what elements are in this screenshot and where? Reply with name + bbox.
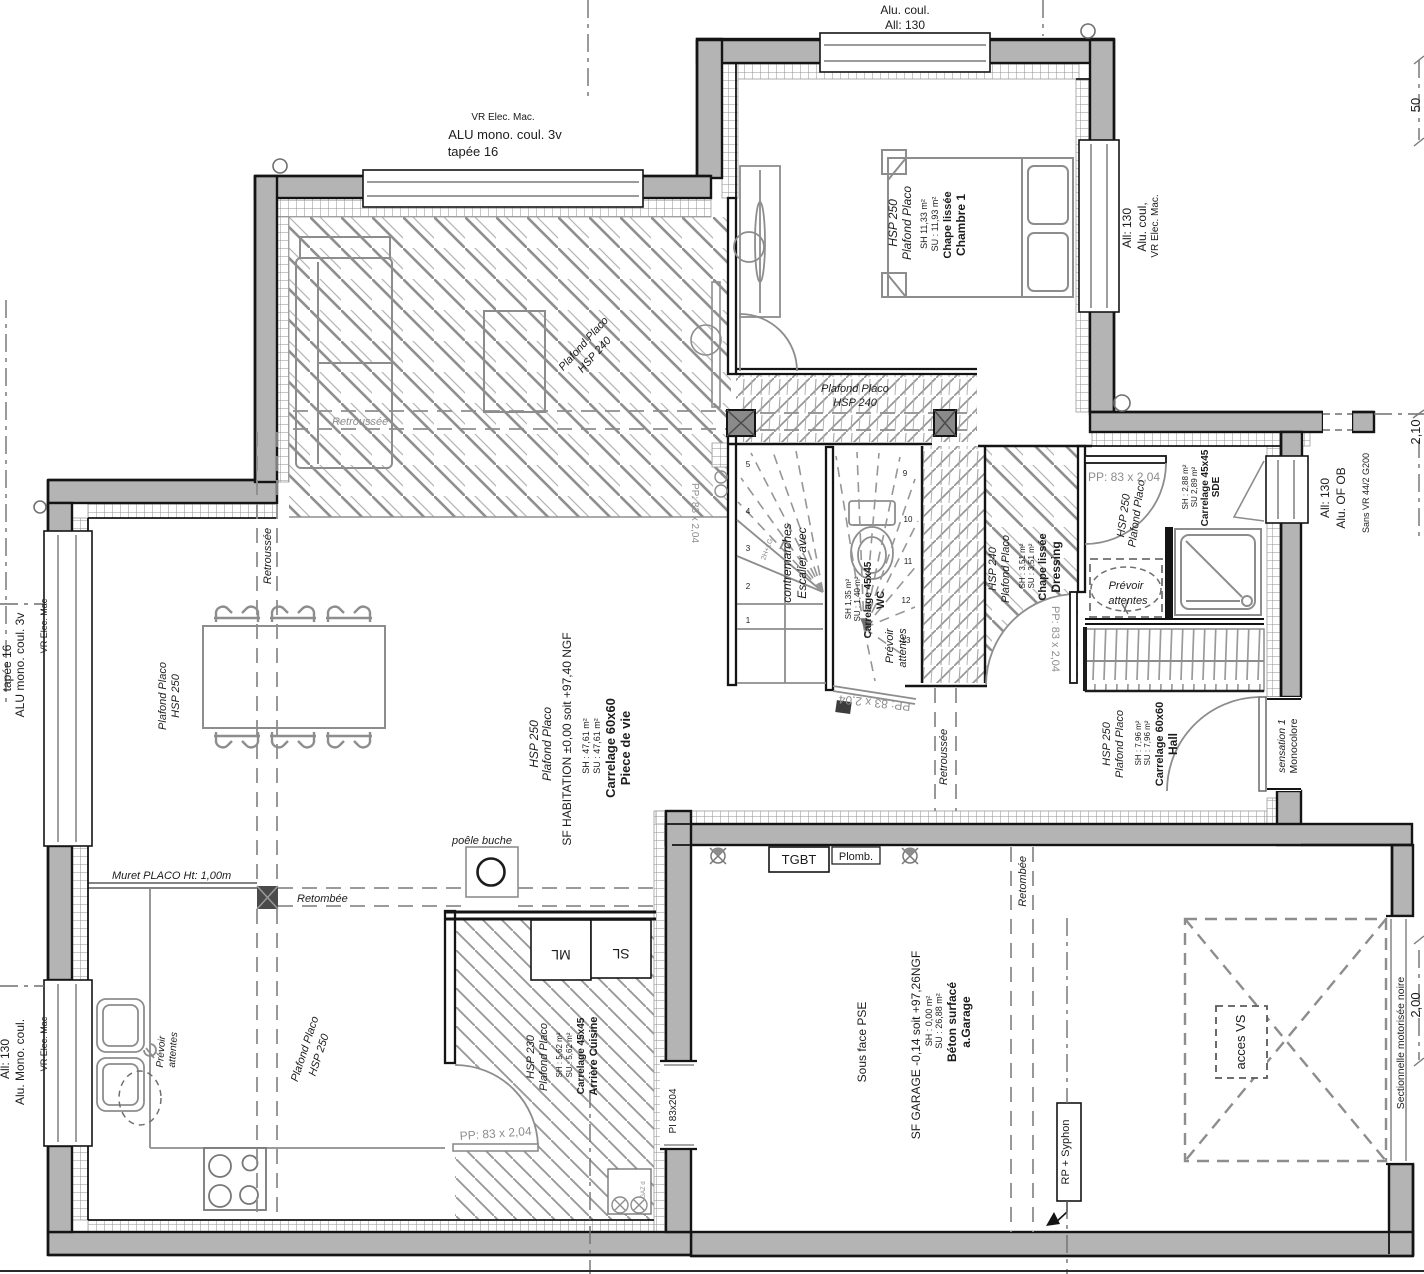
svg-text:SH : 0,00 m²: SH : 0,00 m²: [924, 996, 934, 1047]
svg-text:Plafond Placo: Plafond Placo: [157, 662, 169, 730]
svg-text:Prévoir: Prévoir: [884, 627, 896, 663]
svg-text:GAZ d: GAZ d: [641, 1181, 647, 1198]
svg-text:PP: 83 x 2,04: PP: 83 x 2,04: [1088, 470, 1160, 484]
svg-text:4: 4: [746, 507, 751, 516]
svg-text:Retroussée: Retroussée: [262, 528, 274, 584]
svg-text:attentes: attentes: [897, 628, 909, 668]
svg-text:Plafond Placo: Plafond Placo: [1114, 710, 1126, 778]
svg-text:Carrelage 60x60: Carrelage 60x60: [1154, 702, 1166, 786]
svg-text:SF HABITATION ±0,00 soit +97,4: SF HABITATION ±0,00 soit +97,40 NGF: [560, 632, 574, 845]
svg-text:PI 83x204: PI 83x204: [668, 1088, 679, 1133]
svg-text:WC: WC: [875, 591, 887, 609]
svg-text:Sans VR 44/2 G200: Sans VR 44/2 G200: [1361, 453, 1371, 533]
svg-text:acces VS: acces VS: [1233, 1014, 1248, 1069]
svg-text:ALU mono. coul. 3v: ALU mono. coul. 3v: [448, 127, 562, 142]
svg-text:Hall: Hall: [1166, 733, 1180, 755]
svg-text:SU : 7,96 m²: SU : 7,96 m²: [1143, 720, 1152, 765]
svg-text:Plafond Placo: Plafond Placo: [540, 707, 554, 781]
svg-text:Retombée: Retombée: [1017, 856, 1029, 907]
svg-text:Plomb.: Plomb.: [839, 851, 873, 863]
svg-text:Alu. coul,: Alu. coul,: [1135, 202, 1149, 251]
svg-text:1: 1: [746, 616, 751, 625]
svg-text:SDE: SDE: [1211, 476, 1222, 497]
svg-text:SH : 5,62 m²: SH : 5,62 m²: [555, 1032, 564, 1077]
svg-text:SH 1,35 m²: SH 1,35 m²: [844, 578, 853, 619]
svg-text:Carrelage 45x45: Carrelage 45x45: [576, 1017, 587, 1094]
svg-text:12: 12: [902, 596, 911, 605]
svg-text:contremarches: contremarches: [780, 523, 794, 602]
svg-text:PP: 83 x 2,04: PP: 83 x 2,04: [689, 483, 700, 543]
svg-text:SU : 47,61 m²: SU : 47,61 m²: [592, 718, 602, 774]
svg-text:11: 11: [904, 557, 913, 566]
svg-text:HSP 250: HSP 250: [886, 199, 900, 247]
svg-text:ALU mono. coul. 3v: ALU mono. coul. 3v: [13, 613, 27, 718]
svg-text:Chape lissée: Chape lissée: [942, 191, 954, 258]
svg-text:PP: 83 x 2,04: PP: 83 x 2,04: [1049, 606, 1061, 672]
svg-text:SU : 1,40 m²: SU : 1,40 m²: [853, 576, 862, 621]
svg-text:tapée 16: tapée 16: [0, 644, 14, 691]
svg-text:SL: SL: [612, 946, 629, 962]
svg-text:Plafond Placo: Plafond Placo: [1000, 535, 1012, 603]
svg-text:Plafond Placo: Plafond Placo: [821, 383, 889, 395]
svg-text:SH : 7,96 m²: SH : 7,96 m²: [1134, 720, 1143, 765]
svg-text:Retroussée: Retroussée: [332, 416, 388, 428]
svg-text:SF GARAGE -0,14 soit +97,26NGF: SF GARAGE -0,14 soit +97,26NGF: [909, 951, 923, 1139]
svg-text:sensation 1: sensation 1: [1276, 719, 1288, 773]
svg-text:All: 130: All: 130: [0, 1039, 12, 1079]
svg-text:10: 10: [904, 515, 913, 524]
svg-text:Carrelage 60x60: Carrelage 60x60: [603, 698, 618, 798]
svg-text:HSP 240: HSP 240: [987, 546, 999, 591]
svg-text:SH : 3,51 m²: SH : 3,51 m²: [1018, 543, 1027, 588]
svg-text:SU 2,89 m²: SU 2,89 m²: [1190, 466, 1199, 507]
svg-text:Chape lissée: Chape lissée: [1037, 533, 1049, 600]
svg-text:poêle buche: poêle buche: [451, 835, 512, 847]
svg-text:Muret PLACO Ht: 1,00m: Muret PLACO Ht: 1,00m: [112, 870, 231, 882]
svg-text:Sous face PSE: Sous face PSE: [855, 1002, 869, 1083]
svg-text:Arrière Cuisine: Arrière Cuisine: [588, 1017, 600, 1096]
svg-text:HSP 230: HSP 230: [525, 1034, 537, 1079]
svg-text:All: 130: All: 130: [885, 18, 925, 32]
svg-text:SU : 11,93 m²: SU : 11,93 m²: [930, 197, 940, 252]
svg-text:SH 11,33 m²: SH 11,33 m²: [919, 199, 929, 249]
svg-text:2,10: 2,10: [1408, 419, 1423, 444]
svg-text:Alu. Mono. coul.: Alu. Mono. coul.: [13, 1019, 27, 1105]
svg-text:Sectionnelle motorisée noire: Sectionnelle motorisée noire: [1395, 977, 1407, 1110]
svg-text:tapée 16: tapée 16: [448, 144, 499, 159]
svg-text:Alu. coul.: Alu. coul.: [880, 3, 929, 17]
svg-text:VR Elec. Mac.: VR Elec. Mac.: [471, 112, 534, 123]
svg-text:2: 2: [746, 582, 751, 591]
svg-text:SU : 5,62 m²: SU : 5,62 m²: [565, 1032, 574, 1077]
svg-text:HSP 240: HSP 240: [833, 397, 878, 409]
svg-text:All: 130: All: 130: [1120, 208, 1134, 248]
svg-text:Carrelage 45x45: Carrelage 45x45: [863, 561, 874, 638]
svg-text:Alu. OF OB: Alu. OF OB: [1334, 467, 1348, 528]
svg-text:Escalier avec: Escalier avec: [795, 527, 809, 598]
svg-text:HSP 250: HSP 250: [170, 673, 182, 718]
svg-text:Dressing: Dressing: [1049, 541, 1063, 592]
svg-text:Béton surfacé: Béton surfacé: [945, 982, 959, 1062]
svg-text:VR Elec. Mac: VR Elec. Mac: [39, 1016, 49, 1071]
svg-text:Carrelage 45x45: Carrelage 45x45: [1200, 449, 1211, 526]
svg-text:SH : 47,61 m²: SH : 47,61 m²: [581, 718, 591, 774]
svg-text:Plafond Placo: Plafond Placo: [538, 1023, 550, 1091]
svg-text:VR Elec. Mac.: VR Elec. Mac.: [1150, 194, 1161, 257]
svg-text:50: 50: [1408, 98, 1423, 112]
svg-text:Chambre 1: Chambre 1: [954, 194, 968, 256]
svg-text:2,00: 2,00: [1408, 992, 1423, 1017]
svg-text:Retombée: Retombée: [297, 893, 348, 905]
svg-text:a.Garage: a.Garage: [959, 996, 973, 1048]
svg-text:ML: ML: [551, 947, 571, 963]
svg-text:SU : 26,88 m²: SU : 26,88 m²: [934, 993, 944, 1049]
svg-text:All: 130: All: 130: [1318, 478, 1332, 518]
svg-text:HSP 250: HSP 250: [1101, 721, 1113, 766]
svg-text:VR Elec. Mac: VR Elec. Mac: [39, 598, 49, 653]
svg-text:3: 3: [746, 544, 751, 553]
svg-text:9: 9: [903, 469, 908, 478]
svg-text:SU : 3,51 m²: SU : 3,51 m²: [1027, 543, 1036, 588]
svg-text:Piece de vie: Piece de vie: [618, 711, 633, 785]
svg-text:Retroussée: Retroussée: [938, 729, 950, 785]
svg-text:5: 5: [746, 460, 751, 469]
svg-text:attentes: attentes: [1108, 595, 1148, 607]
svg-text:TGBT: TGBT: [782, 852, 817, 867]
svg-text:HSP 250: HSP 250: [527, 720, 541, 768]
svg-text:RP + Syphon: RP + Syphon: [1060, 1120, 1072, 1185]
svg-text:Monocolore: Monocolore: [1288, 718, 1300, 773]
svg-text:SH : 2,88 m²: SH : 2,88 m²: [1181, 464, 1190, 509]
svg-text:Prévoir: Prévoir: [1109, 580, 1145, 592]
svg-text:Plafond Placo: Plafond Placo: [900, 186, 914, 260]
